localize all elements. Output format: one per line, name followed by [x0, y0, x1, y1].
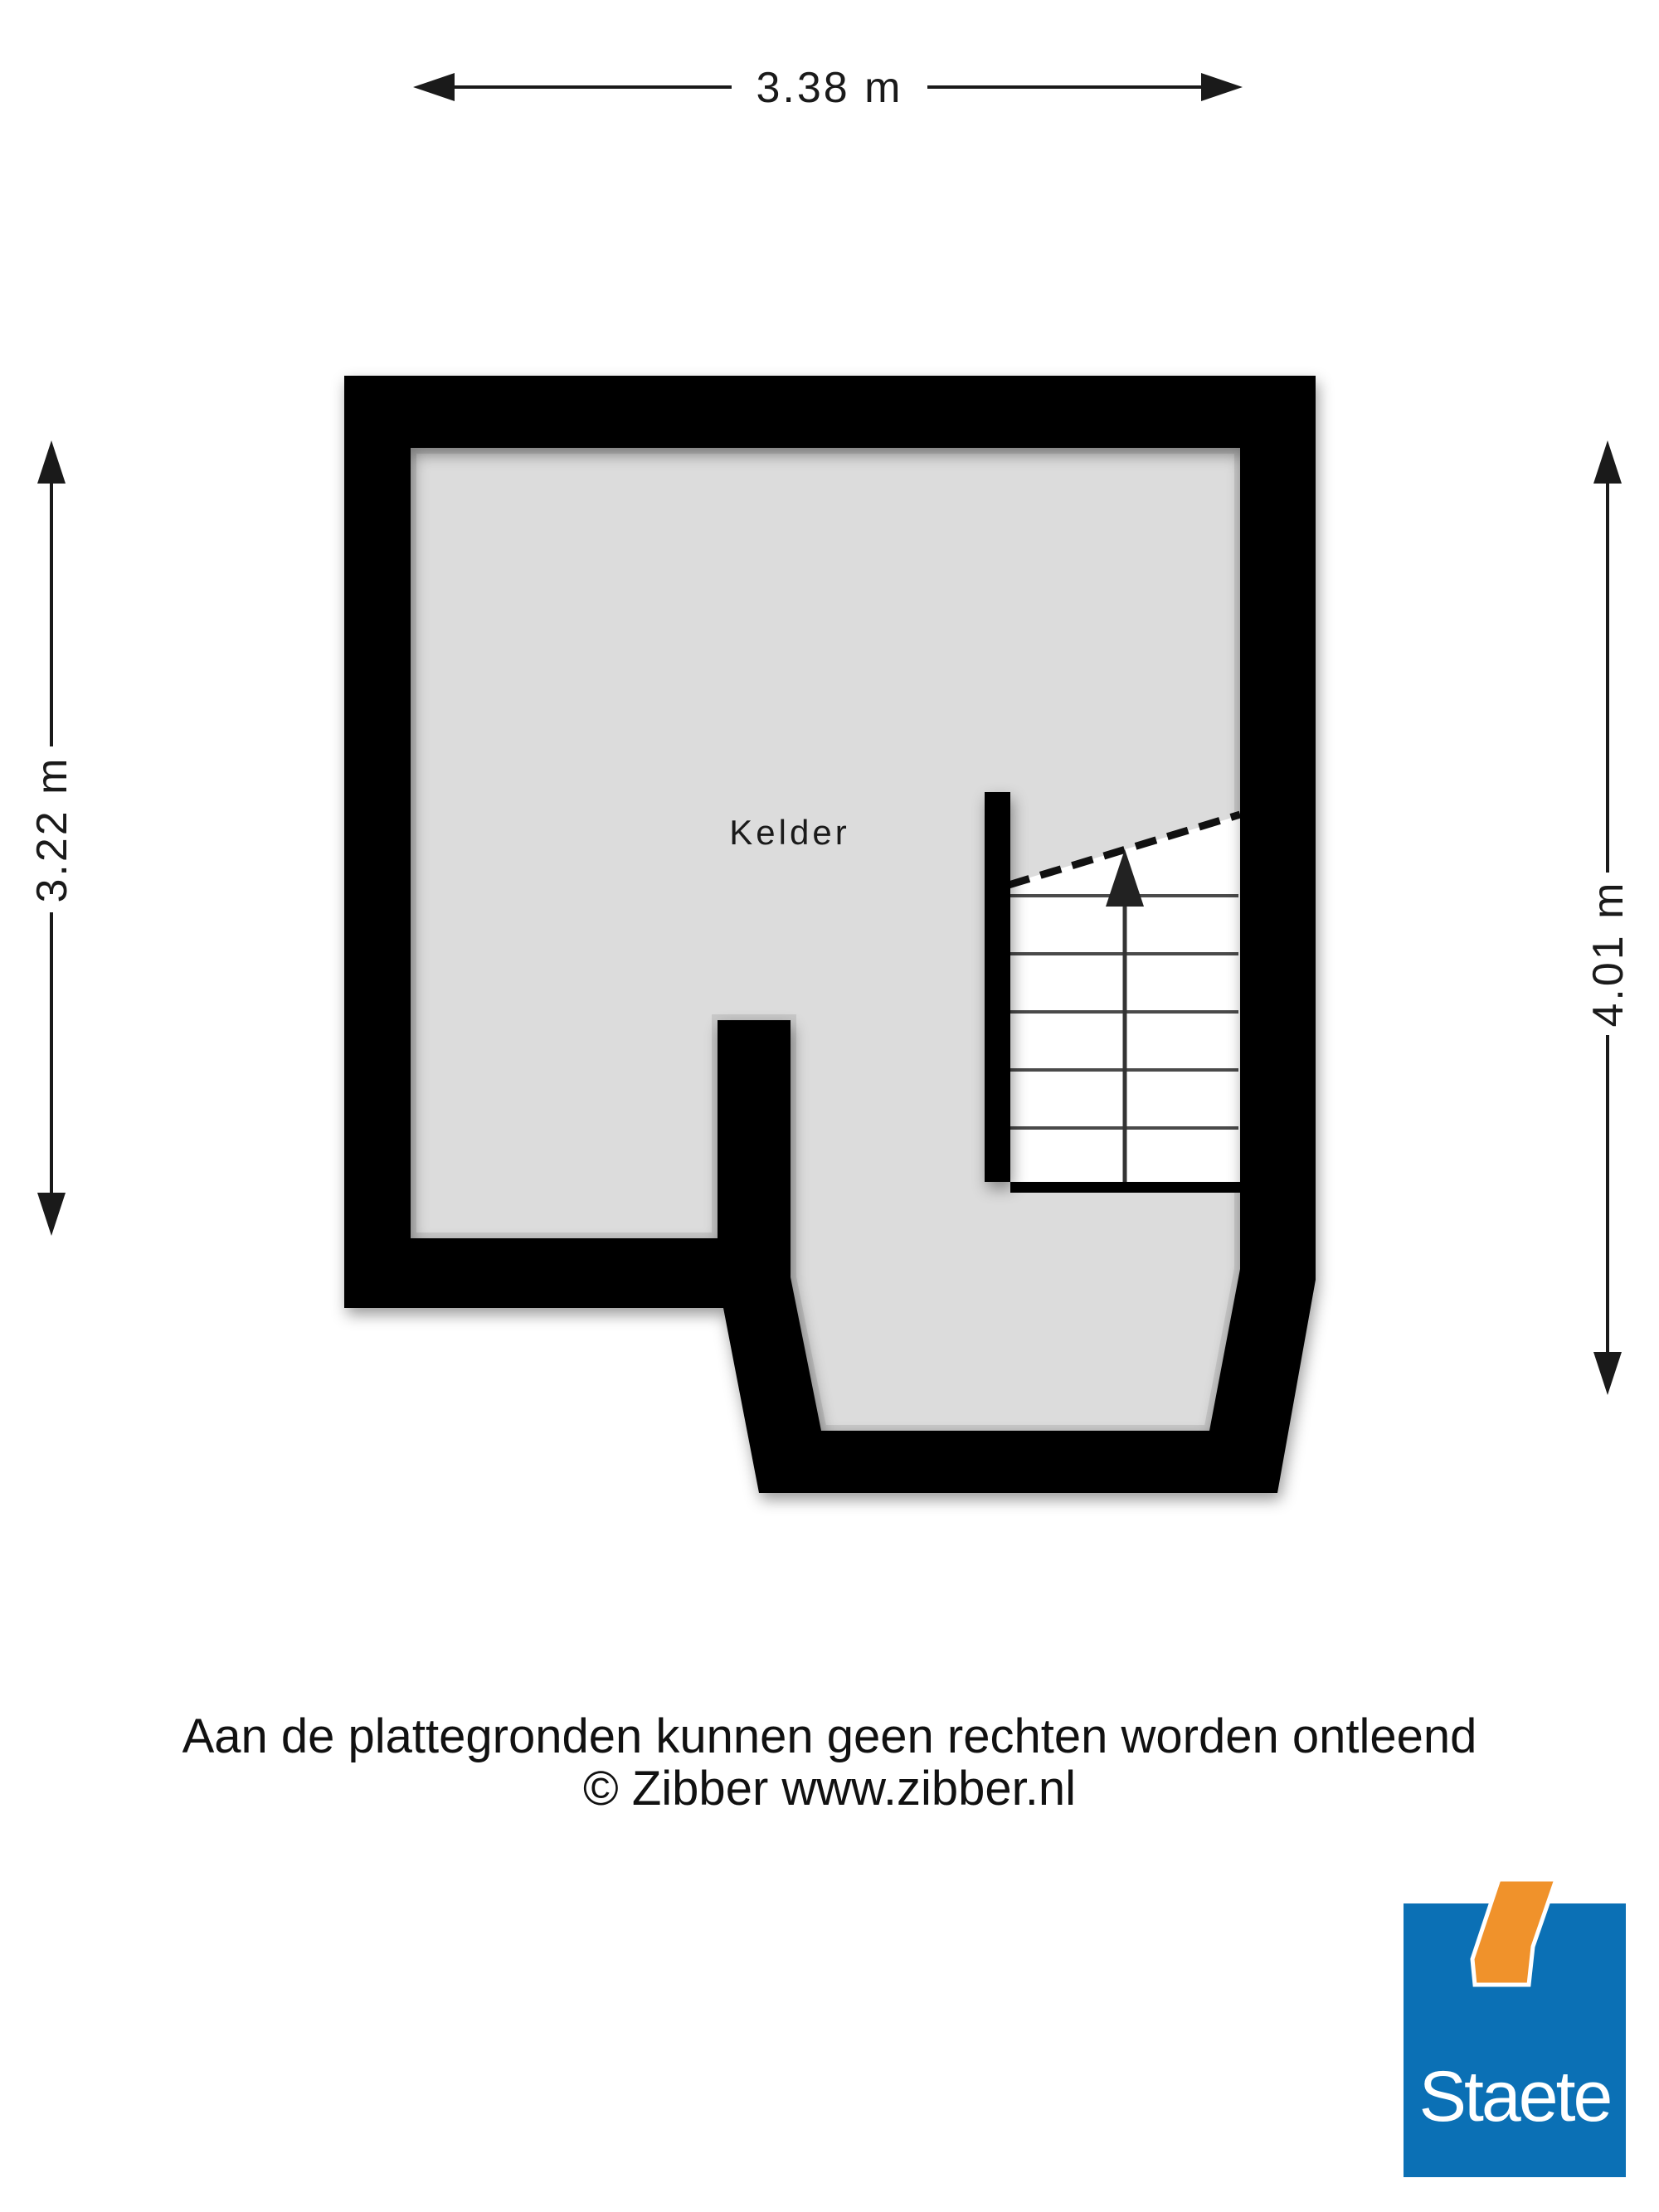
staete-logo: Staete — [1404, 1879, 1626, 2177]
room-label: Kelder — [729, 813, 849, 852]
copyright-text: © Zibber www.zibber.nl — [583, 1762, 1076, 1816]
stairs — [1009, 814, 1240, 1193]
arrowhead-right-icon — [1201, 73, 1243, 101]
dimension-label-right: 4.01 m — [1584, 881, 1632, 1028]
stairs-bottom-edge — [1010, 1182, 1240, 1193]
floorplan: Kelder — [344, 376, 1316, 1493]
arrowhead-down-icon — [37, 1193, 66, 1236]
arrowhead-left-icon — [413, 73, 455, 101]
dimension-label-left: 3.22 m — [28, 756, 76, 903]
arrowhead-down-icon — [1593, 1352, 1622, 1395]
floorplan-page: Kelder 3.38 m 3.22 m 4.01 m Aan de platt… — [0, 0, 1659, 2212]
logo-wordmark: Staete — [1419, 2057, 1611, 2137]
arrowhead-up-icon — [1593, 440, 1622, 484]
stairs-side-wall — [985, 792, 1010, 1182]
arrowhead-up-icon — [37, 440, 66, 484]
disclaimer-text: Aan de plattegronden kunnen geen rechten… — [182, 1709, 1477, 1763]
dimension-label-top: 3.38 m — [757, 64, 903, 112]
